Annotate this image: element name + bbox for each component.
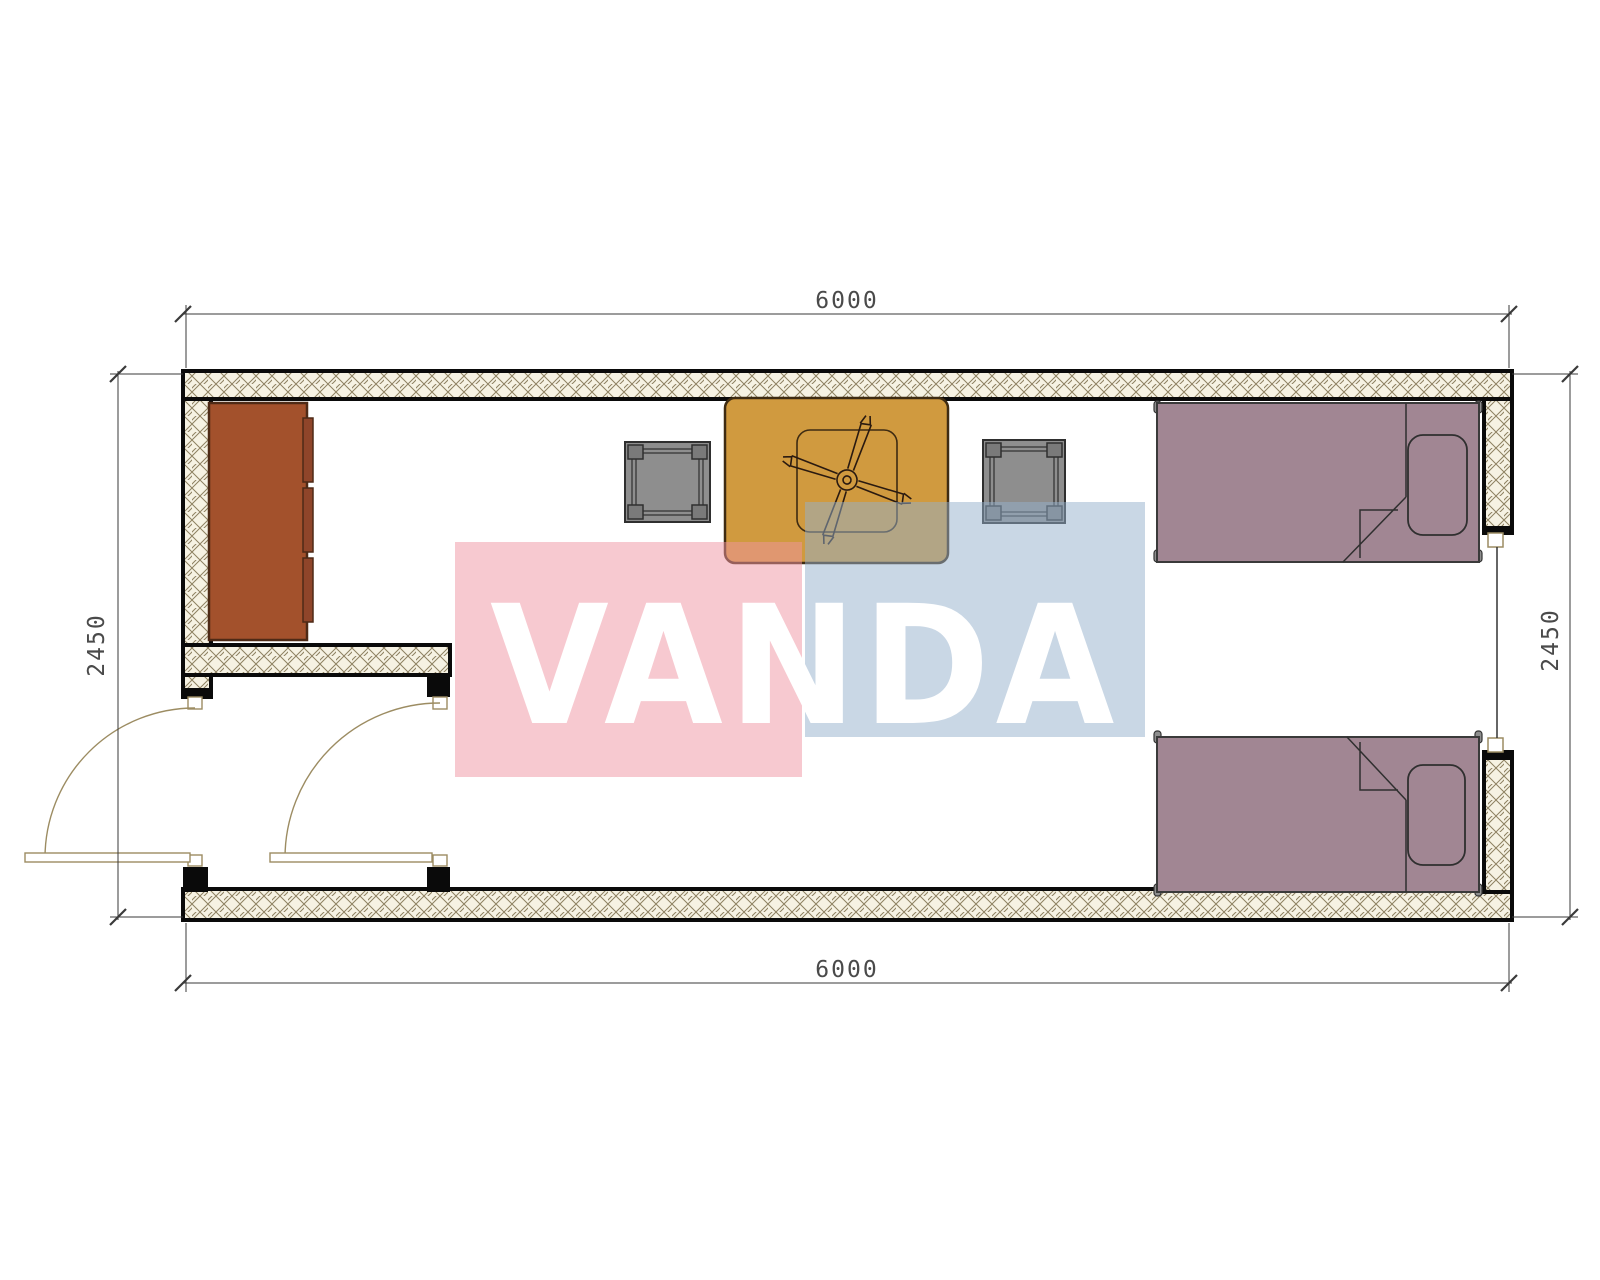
interior-wall-pier (427, 673, 450, 697)
bed-bottom (1154, 731, 1482, 896)
door-stop-icon (188, 697, 202, 709)
door-leaf-icon (270, 853, 432, 862)
door-stop-icon (433, 855, 447, 866)
wardrobe-door (303, 418, 313, 482)
left-wall-end-cap (183, 688, 211, 697)
pillow (1408, 765, 1465, 865)
stool-left (625, 442, 710, 522)
door-leaf-icon (25, 853, 190, 862)
wardrobe-door (303, 488, 313, 552)
dimension-left (110, 366, 183, 925)
right-wall-upper (1484, 399, 1512, 533)
interior-wall-vestibule (183, 645, 450, 697)
dimension-label-top: 6000 (815, 288, 878, 314)
dimension-label-left: 2450 (84, 613, 110, 676)
dimension-label-bottom: 6000 (815, 957, 878, 983)
door-right (270, 697, 447, 866)
bottom-wall (183, 889, 1512, 920)
floor-plan-drawing: 6000 6000 2450 2450 VANDA (0, 0, 1600, 1280)
pillow (1408, 435, 1467, 535)
top-wall (183, 371, 1512, 399)
watermark-text: VANDA (490, 570, 1120, 762)
window-stop-bottom (1488, 738, 1503, 752)
wardrobe-door (303, 558, 313, 622)
right-wall-lower (1484, 752, 1512, 892)
watermark: VANDA (455, 502, 1145, 777)
door-swing-arc-icon (285, 703, 440, 858)
door-left (25, 697, 202, 866)
door-swing-arc-icon (45, 708, 195, 858)
right-wall-end-caps (1484, 526, 1512, 760)
floor-plan-canvas: 6000 6000 2450 2450 VANDA (0, 0, 1600, 1280)
bed-top (1154, 401, 1482, 562)
dimension-label-right: 2450 (1538, 608, 1564, 671)
wardrobe (209, 403, 313, 640)
window-stop-top (1488, 533, 1503, 547)
window (1488, 533, 1503, 752)
dimension-top (175, 305, 1517, 368)
